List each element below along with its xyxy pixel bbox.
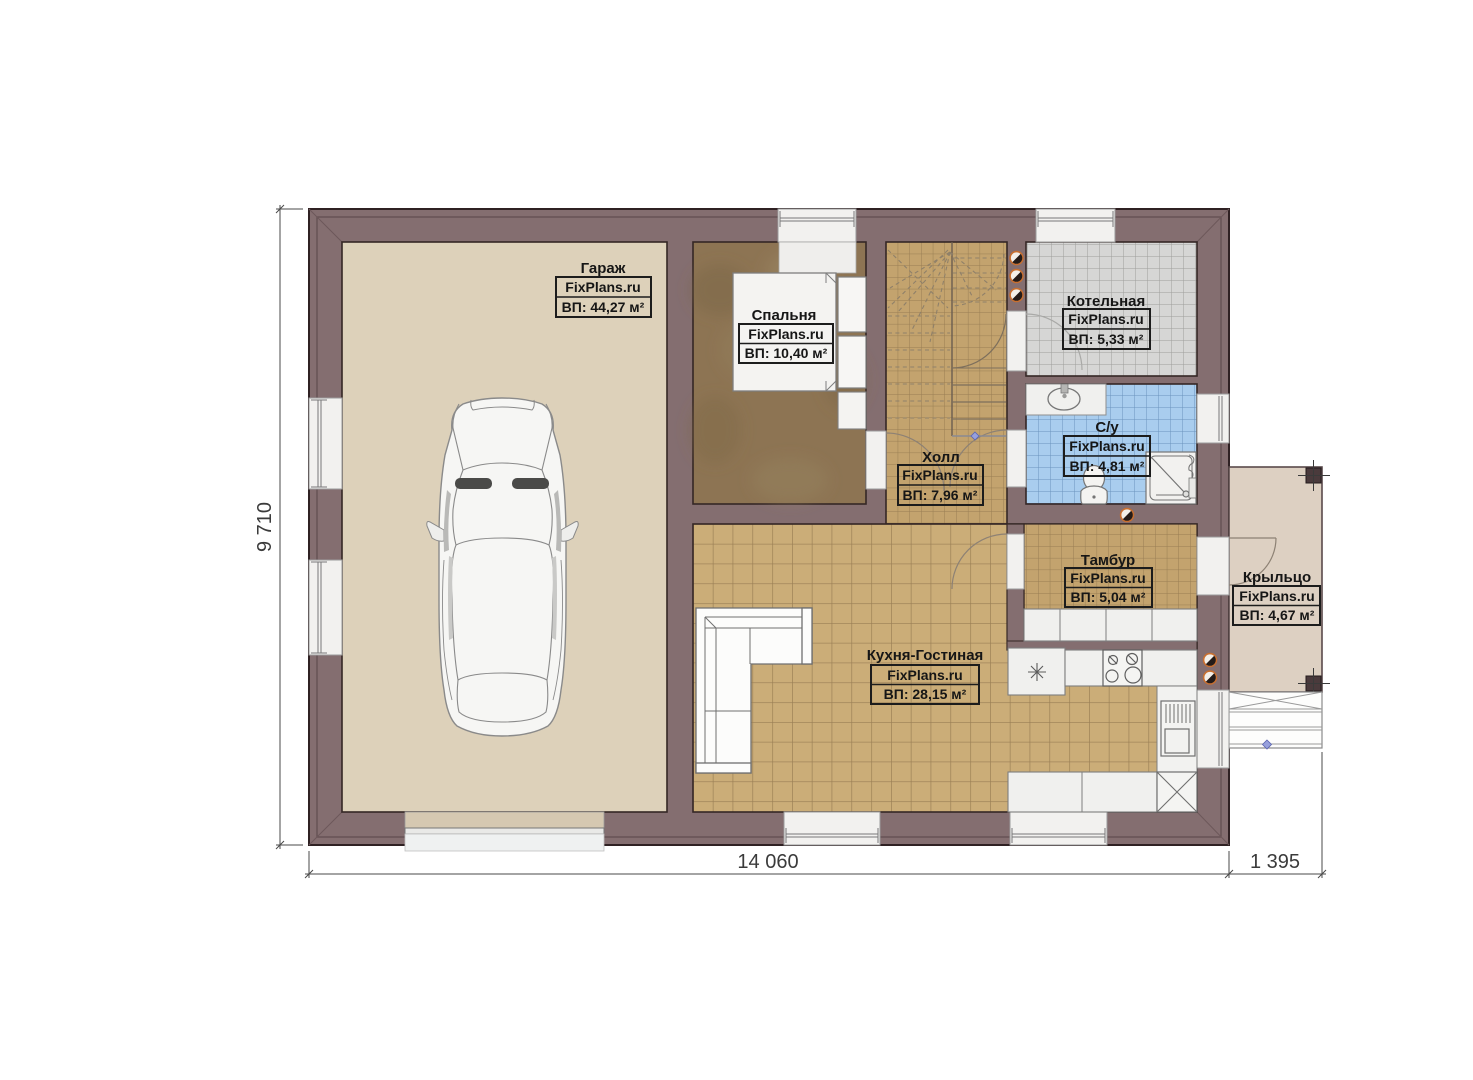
svg-text:14 060: 14 060 [737,851,798,873]
svg-text:1 395: 1 395 [1250,851,1300,873]
svg-text:FixPlans.ru: FixPlans.ru [902,467,977,483]
svg-text:ВП: 4,81 м²: ВП: 4,81 м² [1070,458,1145,474]
svg-text:FixPlans.ru: FixPlans.ru [1068,311,1143,327]
svg-text:С/у: С/у [1095,419,1119,436]
svg-text:ВП: 10,40 м²: ВП: 10,40 м² [745,345,828,361]
svg-text:Холл: Холл [922,449,960,466]
svg-text:ВП: 4,67 м²: ВП: 4,67 м² [1240,607,1315,623]
svg-text:9 710: 9 710 [254,502,276,552]
svg-text:FixPlans.ru: FixPlans.ru [748,326,823,342]
svg-text:FixPlans.ru: FixPlans.ru [1070,570,1145,586]
svg-text:ВП: 5,33 м²: ВП: 5,33 м² [1069,331,1144,347]
svg-text:Кухня-Гостиная: Кухня-Гостиная [867,647,984,664]
svg-text:Котельная: Котельная [1067,293,1146,310]
svg-text:Крыльцо: Крыльцо [1243,569,1311,586]
svg-text:Гараж: Гараж [581,260,626,277]
svg-text:Тамбур: Тамбур [1081,552,1135,569]
svg-text:ВП: 7,96 м²: ВП: 7,96 м² [903,487,978,503]
svg-text:FixPlans.ru: FixPlans.ru [887,667,962,683]
svg-text:FixPlans.ru: FixPlans.ru [565,279,640,295]
svg-text:Спальня: Спальня [752,307,817,324]
svg-text:ВП: 5,04 м²: ВП: 5,04 м² [1071,589,1146,605]
svg-text:ВП: 44,27 м²: ВП: 44,27 м² [562,299,645,315]
svg-text:FixPlans.ru: FixPlans.ru [1239,588,1314,604]
svg-text:ВП: 28,15 м²: ВП: 28,15 м² [884,686,967,702]
svg-text:FixPlans.ru: FixPlans.ru [1069,438,1144,454]
